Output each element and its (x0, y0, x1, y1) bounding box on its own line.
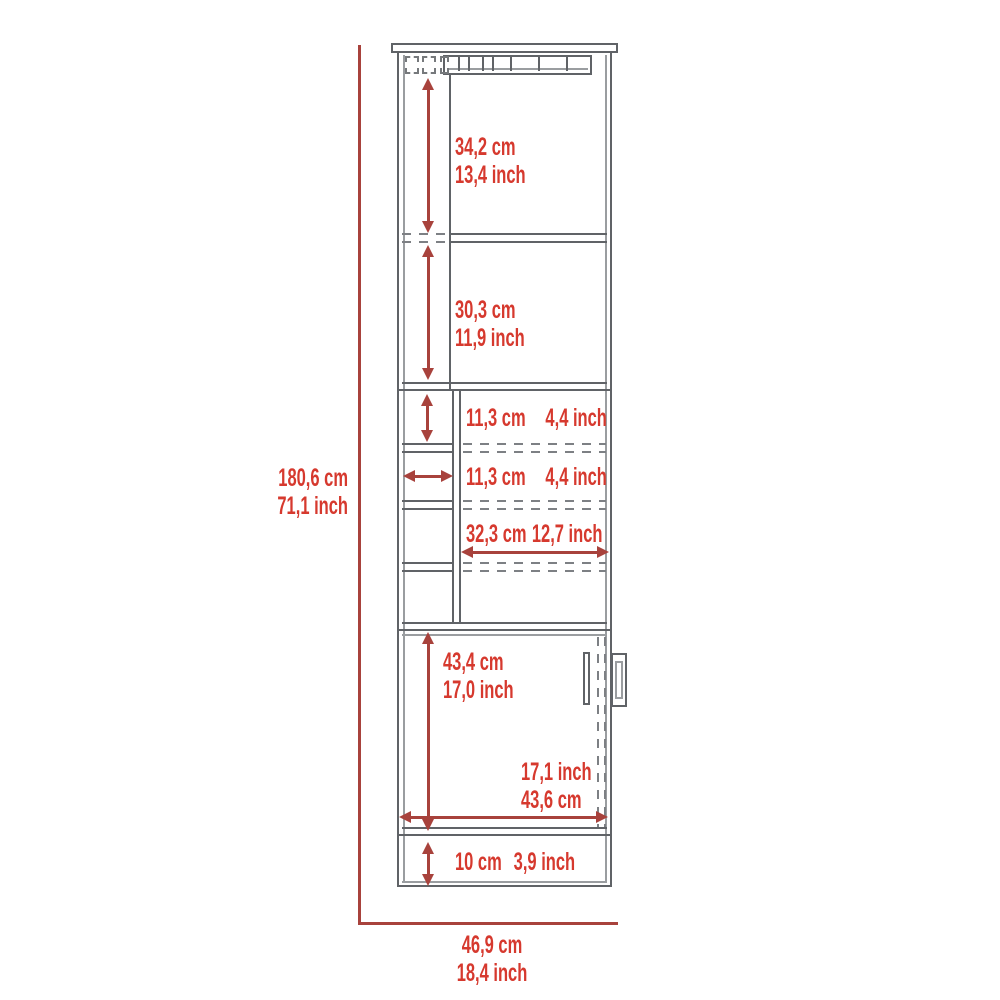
dim-arrow-door-width (411, 816, 596, 819)
dim-base-cm: 10 cm (455, 848, 502, 876)
dim-overall-height-cm: 180,6 cm (216, 464, 348, 492)
dim-mid-shelf-cm: 30,3 cm (455, 296, 525, 324)
dim-mid-shelf-in: 11,9 inch (455, 324, 525, 352)
dim-arrow-top-shelf (427, 90, 430, 221)
dim-label-overall-height: 180,6 cm 71,1 inch (148, 464, 348, 520)
dim-base-in: 3,9 inch (514, 848, 575, 876)
dim-arrow-mid-shelf (427, 257, 430, 368)
dim-cubby-height-pair: 11,3 cm4,4 inch (466, 404, 607, 432)
dim-overall-width-cm: 46,9 cm (426, 931, 558, 959)
dim-label-inner-width: 32,3 cm12,7 inch (466, 520, 673, 548)
dim-inner-width-cm: 32,3 cm (466, 520, 527, 548)
dim-cubby-width-cm: 11,3 cm (466, 463, 526, 491)
dim-label-base-height: 10 cm3,9 inch (455, 848, 637, 876)
dim-top-shelf-in: 13,4 inch (455, 161, 526, 189)
dim-overall-width-in: 18,4 inch (426, 959, 558, 987)
dim-arrow-cubby-height (426, 406, 429, 430)
dim-arrow-cubby-width (415, 475, 441, 478)
dim-door-height-in: 17,0 inch (443, 676, 514, 704)
dim-label-overall-width: 46,9 cm 18,4 inch (392, 931, 592, 987)
dim-overall-height-in: 71,1 inch (216, 492, 348, 520)
dim-door-width-in: 17,1 inch (521, 758, 592, 786)
dim-label-cubby-width: 11,3 cm4,4 inch (466, 463, 679, 491)
dim-door-width-cm: 43,6 cm (521, 786, 592, 814)
dim-cubby-height-cm: 11,3 cm (466, 404, 526, 432)
dim-label-door-height: 43,4 cm 17,0 inch (443, 648, 550, 704)
dim-inner-width-in: 12,7 inch (532, 520, 603, 548)
dim-arrow-base-height (427, 854, 430, 874)
dim-cubby-height-in: 4,4 inch (545, 404, 606, 432)
dim-arrow-door-height (427, 644, 430, 819)
dim-door-height-cm: 43,4 cm (443, 648, 514, 676)
dim-label-mid-shelf: 30,3 cm 11,9 inch (455, 296, 561, 352)
dim-base-pair: 10 cm3,9 inch (455, 848, 575, 876)
dim-label-door-width: 17,1 inch 43,6 cm (521, 758, 628, 814)
dim-inner-width-pair: 32,3 cm12,7 inch (466, 520, 602, 548)
dim-top-shelf-cm: 34,2 cm (455, 133, 526, 161)
dim-cubby-width-in: 4,4 inch (545, 463, 606, 491)
dim-arrow-inner-width (473, 551, 597, 554)
dimension-diagram-canvas: 34,2 cm 13,4 inch 30,3 cm 11,9 inch 11,3… (0, 0, 1000, 1000)
dim-label-cubby-height: 11,3 cm4,4 inch (466, 404, 679, 432)
dim-label-top-shelf: 34,2 cm 13,4 inch (455, 133, 562, 189)
dim-cubby-width-pair: 11,3 cm4,4 inch (466, 463, 607, 491)
